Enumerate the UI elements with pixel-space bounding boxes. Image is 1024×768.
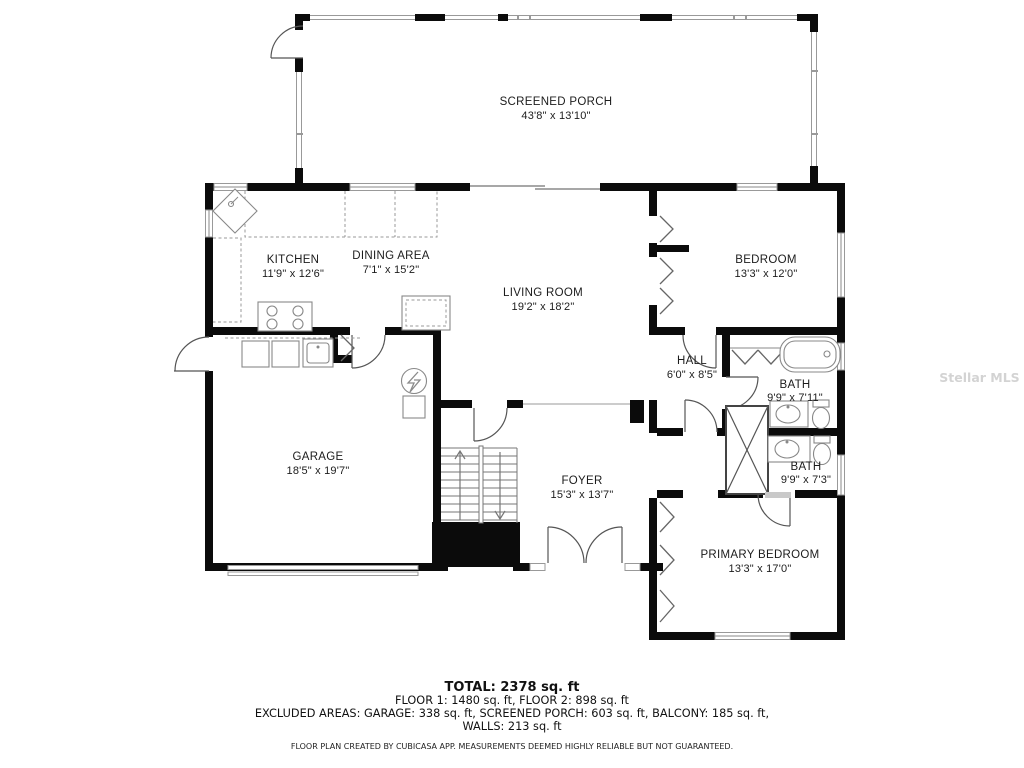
entry-double-doors	[548, 527, 622, 563]
porch-screen-walls	[294, 15, 818, 170]
label-foyer: FOYER15'3" x 13'7"	[551, 475, 614, 501]
side-entry-door	[174, 337, 209, 371]
stairs-down-arrow	[495, 452, 505, 519]
svg-text:DINING AREA: DINING AREA	[352, 250, 429, 262]
foyer-hall-door	[474, 408, 507, 441]
svg-text:18'5" x 19'7": 18'5" x 19'7"	[287, 465, 350, 477]
room-labels: SCREENED PORCH43'8" x 13'10" KITCHEN11'9…	[262, 96, 831, 575]
svg-text:LIVING ROOM: LIVING ROOM	[503, 287, 583, 299]
label-garage: GARAGE18'5" x 19'7"	[287, 451, 350, 477]
svg-text:BATH: BATH	[790, 461, 821, 473]
svg-text:BEDROOM: BEDROOM	[735, 254, 797, 266]
floor-plan-canvas: SCREENED PORCH43'8" x 13'10" KITCHEN11'9…	[0, 0, 1024, 768]
svg-text:9'9" x 7'11": 9'9" x 7'11"	[767, 392, 823, 404]
area-summary: TOTAL: 2378 sq. ft FLOOR 1: 1480 sq. ft,…	[0, 681, 1024, 751]
wall-areas: WALLS: 213 sq. ft	[0, 720, 1024, 733]
floor-areas: FLOOR 1: 1480 sq. ft, FLOOR 2: 898 sq. f…	[0, 694, 1024, 707]
label-screened-porch: SCREENED PORCH43'8" x 13'10"	[500, 96, 613, 122]
svg-text:11'9" x 12'6": 11'9" x 12'6"	[262, 268, 324, 280]
dryer-icon	[272, 341, 299, 367]
total-area: TOTAL: 2378 sq. ft	[0, 681, 1024, 694]
bathtub-icon	[780, 337, 840, 372]
refrigerator	[402, 296, 450, 330]
svg-text:HALL: HALL	[677, 355, 707, 367]
excluded-areas: EXCLUDED AREAS: GARAGE: 338 sq. ft, SCRE…	[0, 707, 1024, 720]
utility-sink-icon	[303, 339, 333, 367]
svg-text:13'3" x 17'0": 13'3" x 17'0"	[729, 563, 792, 575]
svg-text:BATH: BATH	[779, 379, 810, 391]
bath1-door	[726, 377, 758, 409]
laundry-fixtures	[225, 338, 427, 418]
sliding-door	[470, 183, 600, 191]
bath2-sink-icon	[768, 436, 810, 462]
svg-text:13'3" x 12'0": 13'3" x 12'0"	[735, 268, 798, 280]
svg-text:PRIMARY BEDROOM: PRIMARY BEDROOM	[700, 549, 819, 561]
label-bath1: BATH9'9" x 7'11"	[767, 379, 823, 404]
bath-threshold	[765, 492, 791, 498]
svg-text:15'3" x 13'7": 15'3" x 13'7"	[551, 489, 614, 501]
hall-vestibule-door	[685, 400, 717, 432]
primary-bedroom-door	[758, 494, 790, 526]
label-living: LIVING ROOM19'2" x 18'2"	[503, 287, 583, 313]
label-primary: PRIMARY BEDROOM13'3" x 17'0"	[700, 549, 819, 575]
svg-text:KITCHEN: KITCHEN	[267, 254, 320, 266]
svg-text:43'8" x 13'10": 43'8" x 13'10"	[521, 110, 590, 122]
disclaimer: FLOOR PLAN CREATED BY CUBICASA APP. MEAS…	[0, 742, 1024, 751]
kitchen-island	[213, 189, 257, 233]
label-dining: DINING AREA7'1" x 15'2"	[352, 250, 429, 276]
svg-text:19'2" x 18'2": 19'2" x 18'2"	[512, 301, 575, 313]
svg-text:6'0" x 8'5": 6'0" x 8'5"	[667, 369, 717, 381]
stove-icon	[258, 302, 312, 331]
svg-text:GARAGE: GARAGE	[292, 451, 343, 463]
electrical-panel-icon	[402, 369, 427, 419]
stairs	[441, 446, 517, 523]
label-bedroom: BEDROOM13'3" x 12'0"	[735, 254, 798, 280]
svg-text:7'1" x 15'2": 7'1" x 15'2"	[363, 264, 420, 276]
closet-doors	[341, 216, 784, 622]
svg-text:9'9" x 7'3": 9'9" x 7'3"	[781, 474, 831, 486]
shower-icon	[726, 406, 768, 494]
svg-text:FOYER: FOYER	[561, 475, 602, 487]
stellar-mls-watermark: Stellar MLS	[932, 370, 1024, 385]
kitchen-garage-door	[352, 335, 385, 368]
washer-icon	[242, 341, 269, 367]
bath1-sink-icon	[770, 401, 808, 427]
svg-text:SCREENED PORCH: SCREENED PORCH	[500, 96, 613, 108]
floor-plan-page: SCREENED PORCH43'8" x 13'10" KITCHEN11'9…	[0, 0, 1024, 768]
stairs-up-arrow	[455, 451, 465, 520]
label-kitchen: KITCHEN11'9" x 12'6"	[262, 254, 324, 280]
bath1-toilet-icon	[813, 400, 830, 429]
